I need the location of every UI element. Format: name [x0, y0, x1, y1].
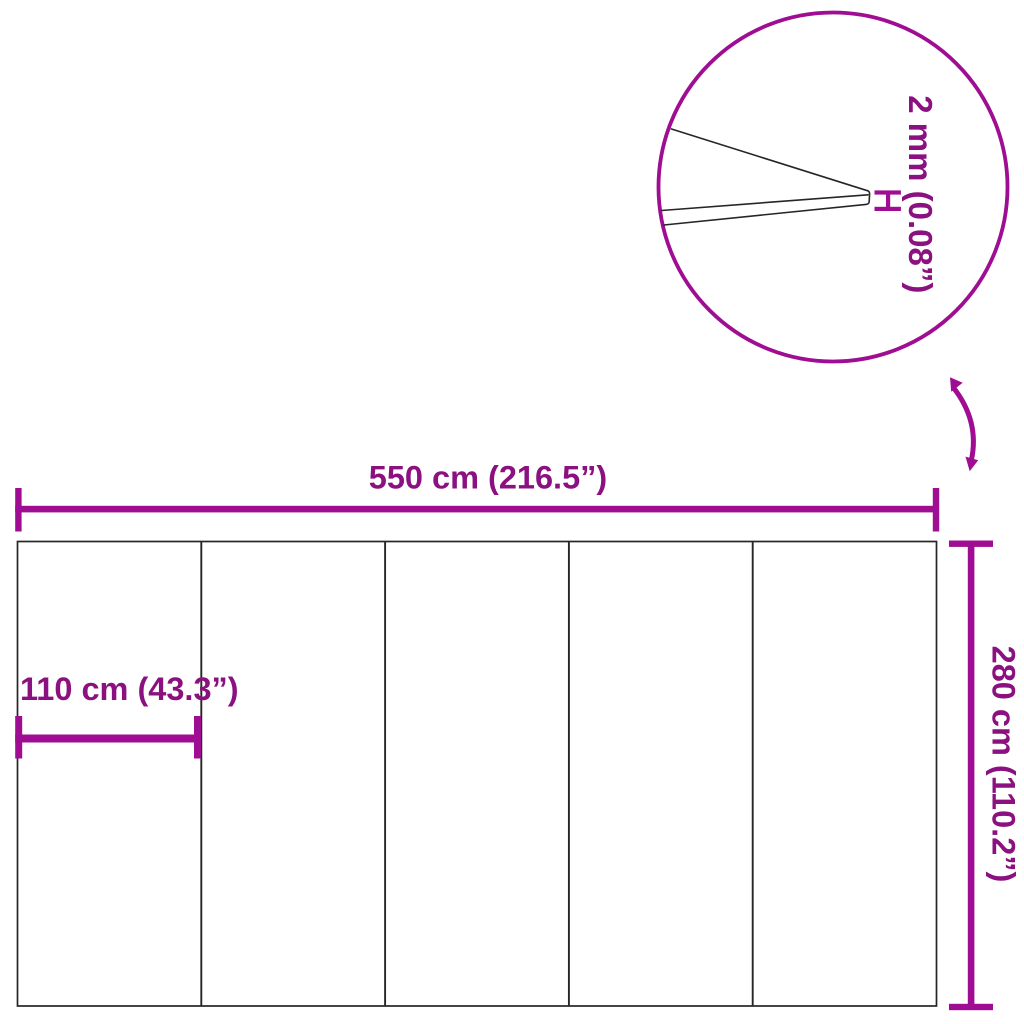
- svg-text:110 cm (43.3”): 110 cm (43.3”): [20, 671, 239, 707]
- svg-text:280 cm (110.2”): 280 cm (110.2”): [986, 646, 1022, 883]
- svg-text:550 cm (216.5”): 550 cm (216.5”): [369, 460, 607, 496]
- svg-text:2 mm (0.08”): 2 mm (0.08”): [902, 95, 939, 293]
